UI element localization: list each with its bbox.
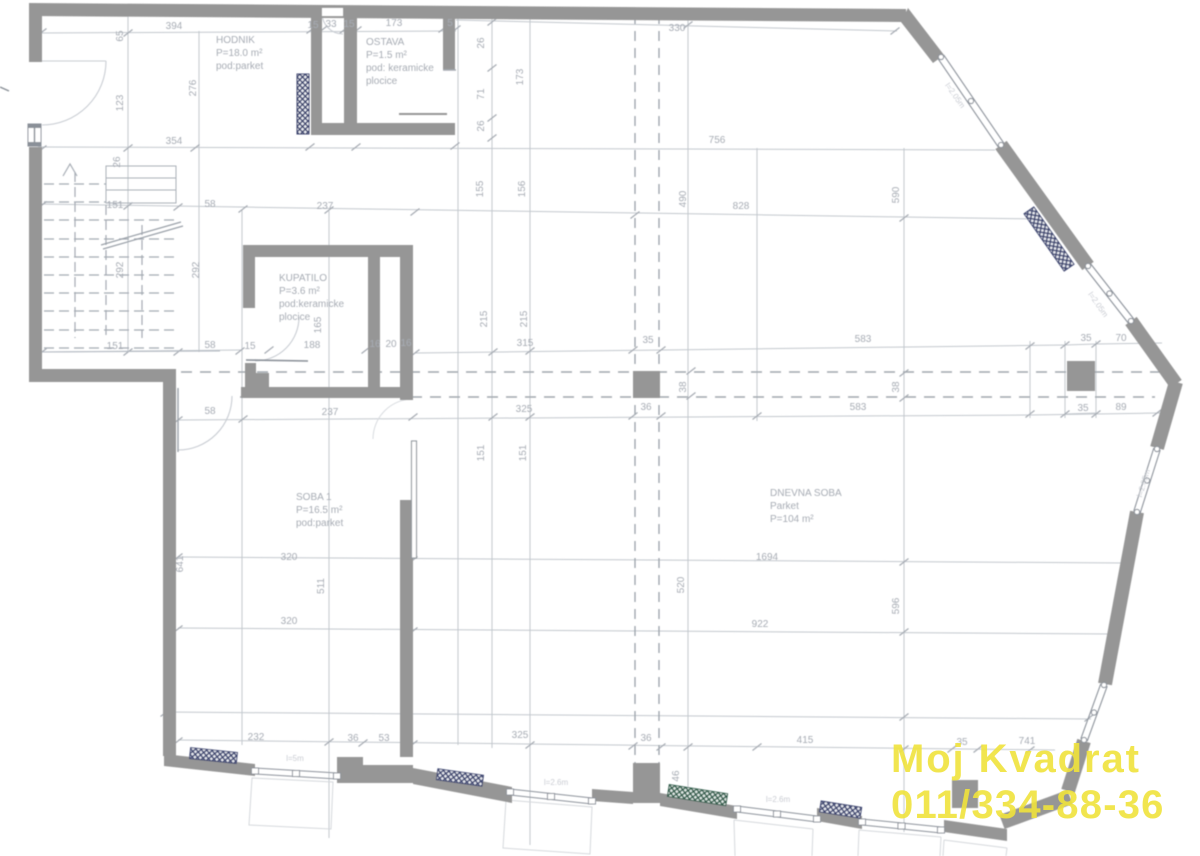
svg-text:215: 215 (479, 310, 490, 327)
svg-text:plocice: plocice (366, 76, 398, 87)
svg-text:354: 354 (166, 136, 183, 147)
svg-text:36: 36 (640, 402, 652, 413)
svg-text:641: 641 (175, 555, 186, 572)
svg-text:511: 511 (316, 578, 327, 594)
svg-text:20: 20 (385, 339, 397, 350)
svg-text:520: 520 (676, 576, 687, 593)
svg-text:123: 123 (115, 94, 126, 111)
svg-text:HODNIK: HODNIK (216, 35, 255, 46)
svg-text:pod:parket: pod:parket (216, 61, 263, 72)
svg-text:325: 325 (516, 404, 533, 415)
svg-text:pod:parket: pod:parket (296, 518, 343, 529)
svg-text:5: 5 (447, 18, 453, 29)
svg-text:151: 151 (518, 444, 529, 461)
svg-text:53: 53 (378, 733, 390, 744)
svg-text:33: 33 (325, 19, 337, 30)
svg-text:232: 232 (248, 732, 265, 743)
svg-text:15: 15 (307, 20, 319, 31)
svg-text:OSTAVA: OSTAVA (366, 37, 405, 48)
svg-text:320: 320 (281, 552, 298, 563)
svg-text:l=5m: l=5m (286, 754, 304, 763)
svg-text:26: 26 (476, 120, 487, 132)
svg-text:394: 394 (166, 21, 183, 32)
svg-text:237: 237 (322, 407, 339, 418)
svg-text:Moj Kvadrat: Moj Kvadrat (891, 737, 1141, 781)
svg-text:237: 237 (317, 201, 334, 212)
svg-text:DNEVNA SOBA: DNEVNA SOBA (770, 488, 842, 499)
svg-text:58: 58 (204, 199, 216, 210)
svg-text:71: 71 (476, 88, 487, 100)
svg-text:35: 35 (642, 335, 654, 346)
svg-text:188: 188 (304, 340, 321, 351)
svg-text:292: 292 (191, 261, 202, 278)
svg-text:P=16.5 m²: P=16.5 m² (296, 505, 343, 516)
svg-text:320: 320 (281, 616, 298, 627)
svg-text:173: 173 (515, 68, 526, 85)
svg-text:276: 276 (188, 79, 199, 96)
svg-text:35: 35 (1080, 333, 1092, 344)
svg-text:58: 58 (204, 406, 216, 417)
svg-text:pod: keramicke: pod: keramicke (366, 63, 434, 74)
svg-text:165: 165 (313, 316, 324, 333)
svg-text:P=18.0 m²: P=18.0 m² (216, 48, 263, 59)
svg-text:1694: 1694 (756, 552, 779, 563)
svg-text:35: 35 (1077, 403, 1089, 414)
svg-text:011/334-88-36: 011/334-88-36 (891, 783, 1165, 827)
svg-text:828: 828 (733, 201, 750, 212)
svg-text:26: 26 (476, 37, 487, 49)
svg-text:89: 89 (1115, 402, 1127, 413)
svg-text:151: 151 (107, 341, 124, 352)
svg-text:156: 156 (517, 180, 528, 197)
svg-text:P=104 m²: P=104 m² (770, 514, 814, 525)
svg-text:583: 583 (855, 334, 872, 345)
svg-text:922: 922 (752, 619, 769, 630)
svg-text:292: 292 (115, 261, 126, 278)
svg-text:Parket: Parket (770, 501, 799, 512)
svg-text:16: 16 (400, 338, 412, 349)
svg-text:plocice: plocice (279, 312, 311, 323)
svg-text:65: 65 (115, 30, 126, 42)
svg-text:46: 46 (671, 770, 682, 782)
svg-text:151: 151 (107, 200, 124, 211)
svg-text:215: 215 (519, 310, 530, 327)
svg-text:330: 330 (669, 23, 686, 34)
svg-text:16: 16 (369, 339, 381, 350)
svg-text:38: 38 (678, 381, 689, 393)
svg-text:l=2.6m: l=2.6m (544, 778, 569, 787)
svg-text:l=2.6m: l=2.6m (766, 795, 791, 804)
svg-text:151: 151 (476, 444, 487, 461)
svg-text:15: 15 (244, 341, 256, 352)
svg-text:36: 36 (347, 733, 359, 744)
svg-text:58: 58 (204, 340, 216, 351)
svg-text:315: 315 (517, 338, 534, 349)
svg-text:756: 756 (709, 135, 726, 146)
svg-text:15: 15 (343, 19, 355, 30)
svg-text:38: 38 (891, 381, 902, 393)
svg-text:36: 36 (640, 733, 652, 744)
svg-text:pod:keramicke: pod:keramicke (279, 299, 344, 310)
svg-text:325: 325 (512, 730, 529, 741)
svg-text:155: 155 (475, 180, 486, 197)
svg-text:490: 490 (678, 190, 689, 207)
svg-text:583: 583 (850, 402, 867, 413)
svg-text:590: 590 (891, 186, 902, 203)
svg-text:70: 70 (1115, 333, 1127, 344)
svg-text:596: 596 (891, 597, 902, 614)
svg-text:26: 26 (112, 156, 123, 168)
svg-text:173: 173 (386, 18, 403, 29)
svg-text:SOBA 1: SOBA 1 (296, 492, 332, 503)
svg-text:P=1.5 m²: P=1.5 m² (366, 50, 408, 61)
svg-text:KUPATILO: KUPATILO (279, 273, 327, 284)
svg-text:P=3.6 m²: P=3.6 m² (279, 286, 321, 297)
svg-text:415: 415 (797, 735, 814, 746)
